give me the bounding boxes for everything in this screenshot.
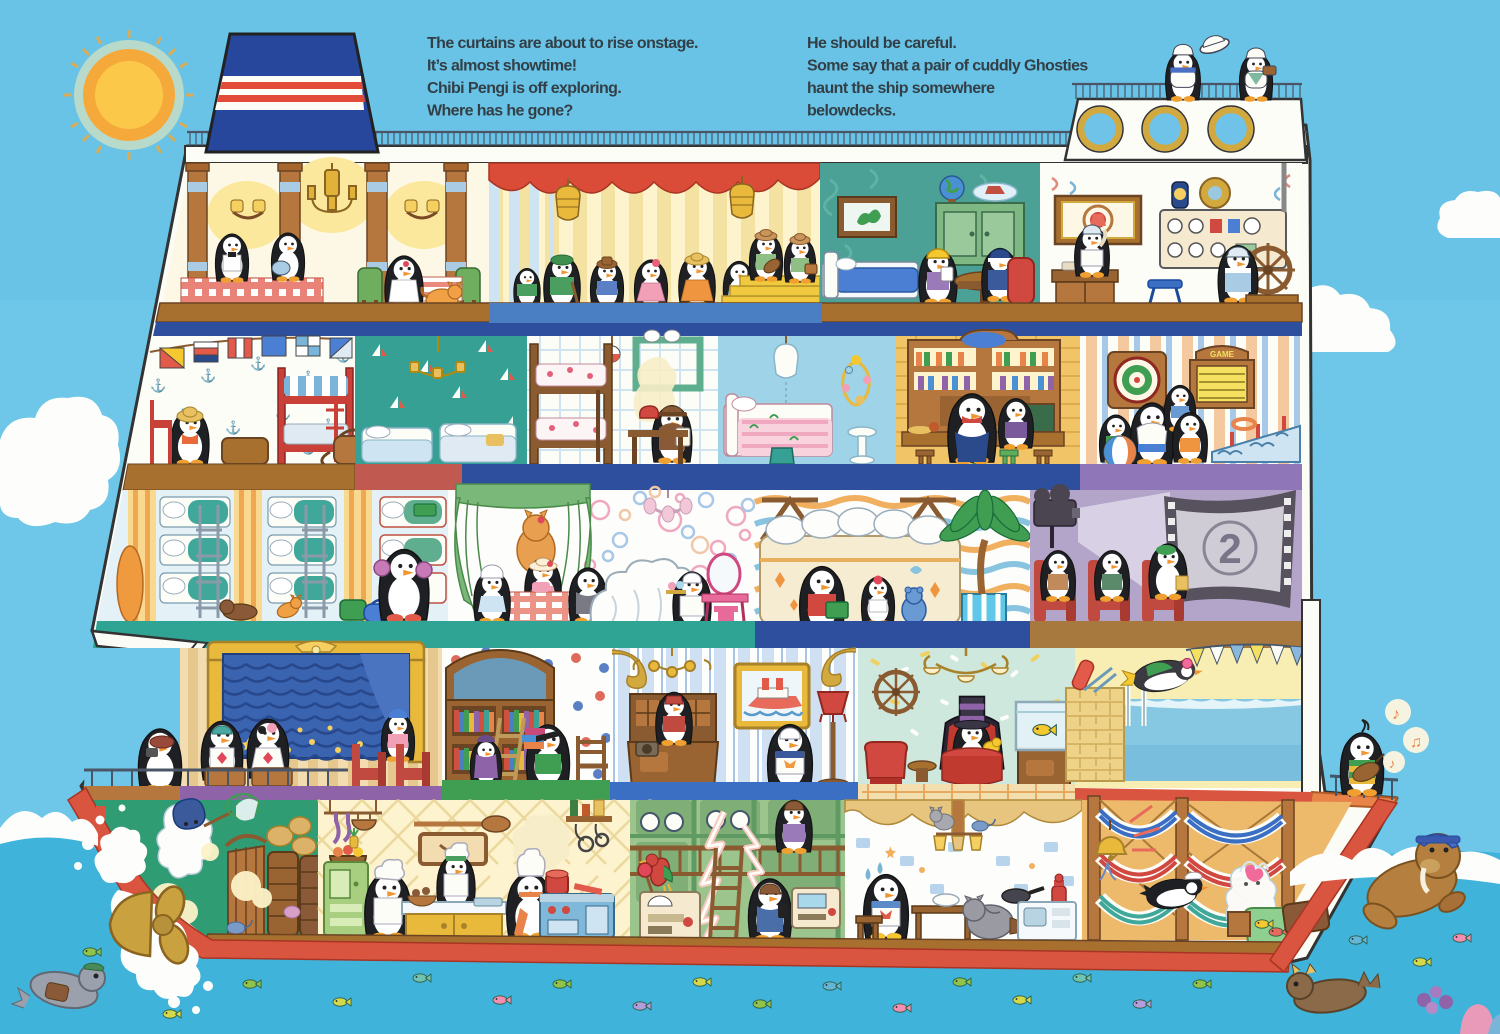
svg-text:Chibi Pengi is off exploring.: Chibi Pengi is off exploring. <box>427 80 621 97</box>
svg-text:Where has he gone?: Where has he gone? <box>427 103 573 120</box>
svg-text:♪: ♪ <box>1392 706 1400 723</box>
svg-text:⚓: ⚓ <box>200 368 216 383</box>
svg-text:It’s almost showtime!: It’s almost showtime! <box>427 58 577 75</box>
svg-text:2: 2 <box>1218 525 1241 572</box>
svg-text:GAME: GAME <box>1210 350 1235 359</box>
svg-text:He should be careful.: He should be careful. <box>807 35 956 52</box>
svg-text:♫: ♫ <box>1410 734 1422 751</box>
svg-text:belowdecks.: belowdecks. <box>807 103 896 120</box>
svg-text:♪: ♪ <box>1389 756 1396 771</box>
svg-text:⚓: ⚓ <box>225 420 241 435</box>
svg-text:The curtains are about to rise: The curtains are about to rise onstage. <box>427 35 698 52</box>
svg-text:Some say that a pair of cuddly: Some say that a pair of cuddly Ghosties <box>807 58 1088 75</box>
svg-text:haunt the ship somewhere: haunt the ship somewhere <box>807 80 995 97</box>
svg-text:⚓: ⚓ <box>150 378 166 393</box>
